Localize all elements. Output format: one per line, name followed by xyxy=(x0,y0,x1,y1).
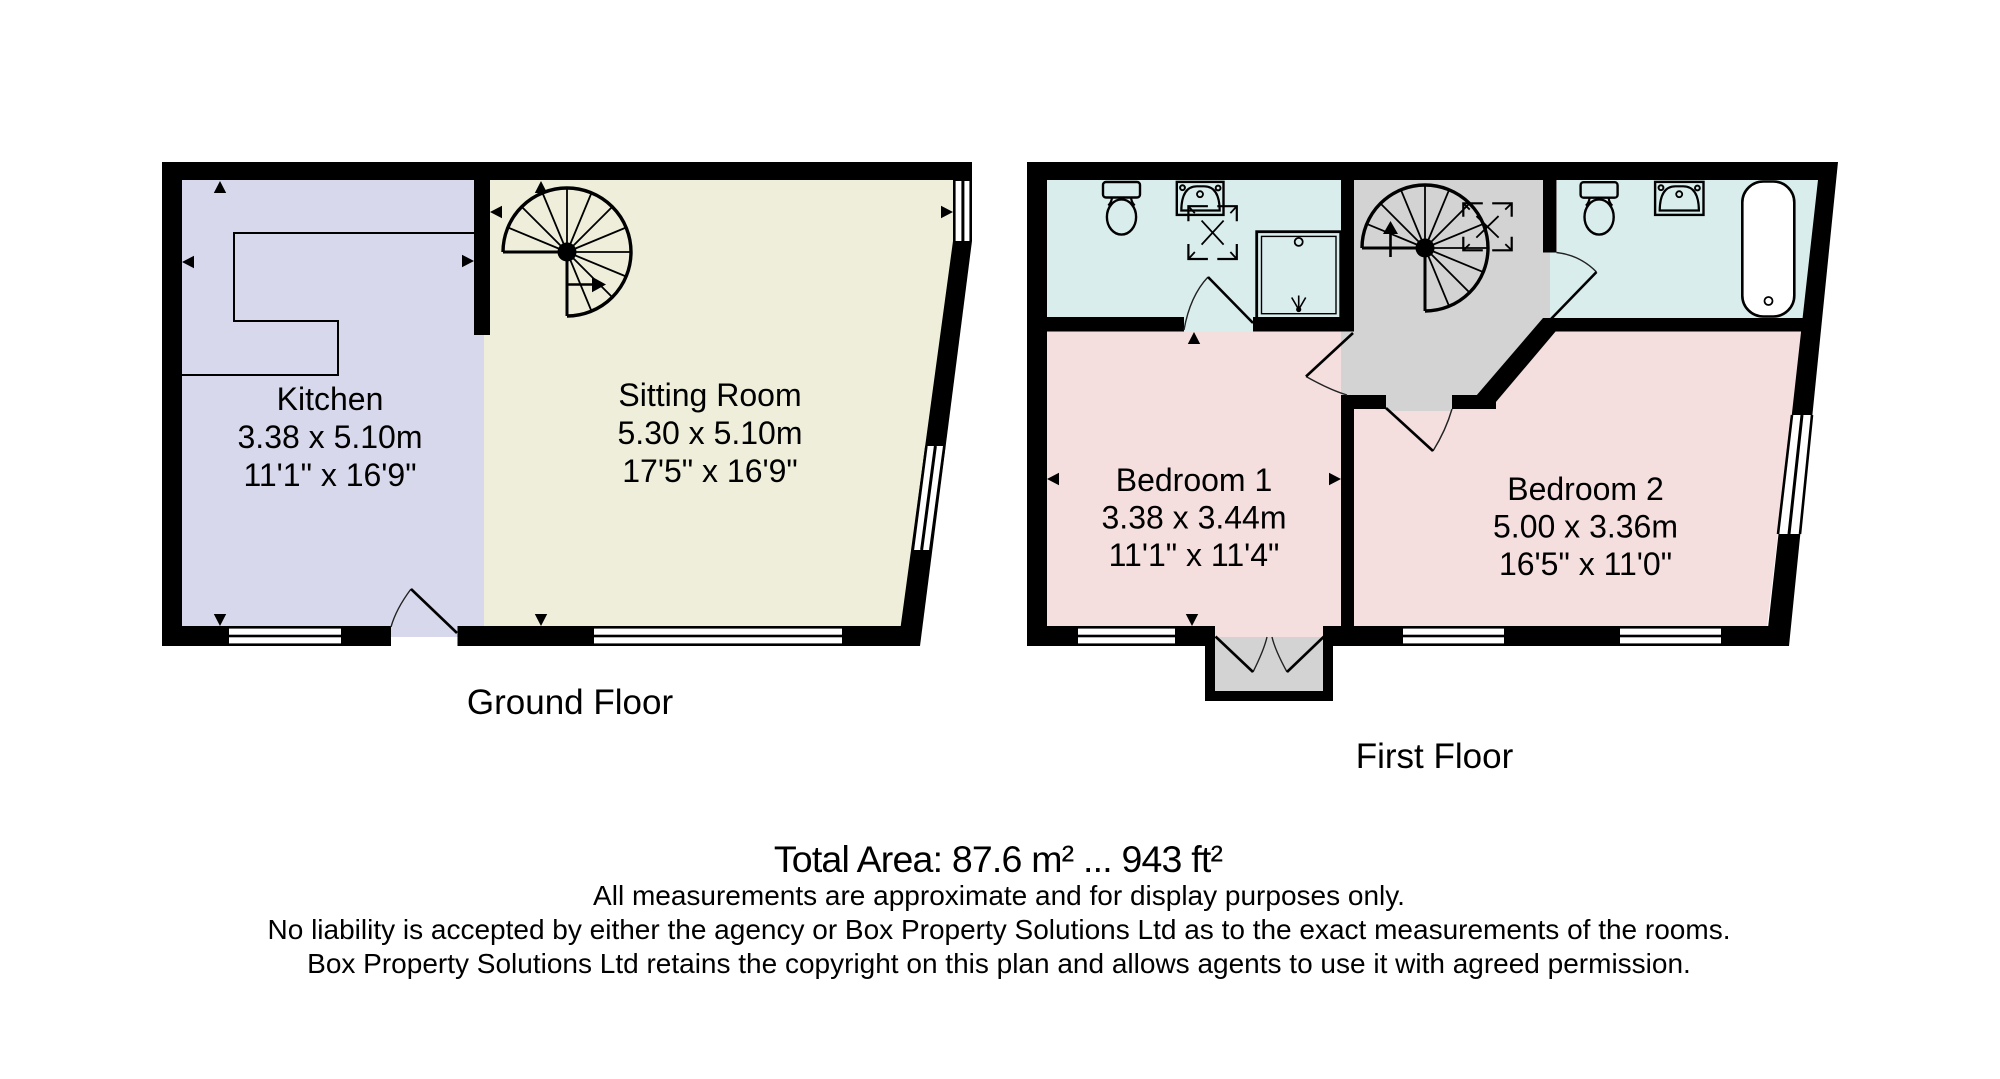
svg-text:First Floor: First Floor xyxy=(1356,737,1514,776)
svg-text:All measurements are approxima: All measurements are approximate and for… xyxy=(593,880,1405,911)
svg-text:Bedroom 1: Bedroom 1 xyxy=(1116,462,1273,498)
svg-text:11'1" x 11'4": 11'1" x 11'4" xyxy=(1109,537,1280,573)
svg-text:11'1" x 16'9": 11'1" x 16'9" xyxy=(243,457,416,493)
svg-text:16'5" x 11'0": 16'5" x 11'0" xyxy=(1499,546,1672,582)
svg-text:5.00 x 3.36m: 5.00 x 3.36m xyxy=(1493,509,1678,545)
svg-text:5.30 x 5.10m: 5.30 x 5.10m xyxy=(618,415,803,451)
svg-text:Kitchen: Kitchen xyxy=(277,381,384,417)
svg-text:Bedroom 2: Bedroom 2 xyxy=(1507,471,1664,507)
svg-text:Sitting Room: Sitting Room xyxy=(618,377,801,413)
svg-text:No liability is accepted by ei: No liability is accepted by either the a… xyxy=(268,914,1731,945)
svg-text:Ground Floor: Ground Floor xyxy=(467,683,674,722)
svg-text:3.38 x 5.10m: 3.38 x 5.10m xyxy=(238,419,423,455)
svg-text:3.38 x 3.44m: 3.38 x 3.44m xyxy=(1102,500,1287,536)
svg-text:17'5" x 16'9": 17'5" x 16'9" xyxy=(622,453,798,489)
svg-text:Box Property Solutions Ltd ret: Box Property Solutions Ltd retains the c… xyxy=(307,948,1691,979)
svg-text:Total Area: 87.6 m² ... 943 ft: Total Area: 87.6 m² ... 943 ft² xyxy=(774,838,1223,880)
